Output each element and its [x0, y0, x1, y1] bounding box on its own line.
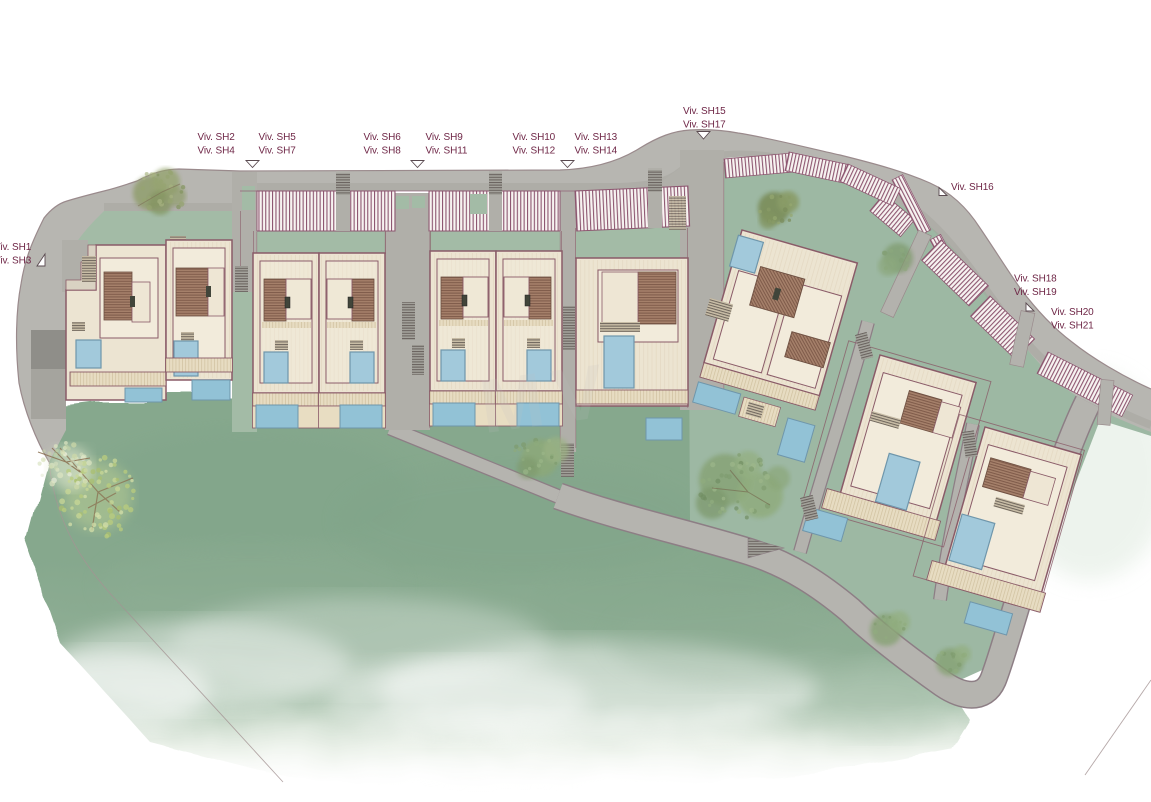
- svg-text:Viv. SH11: Viv. SH11: [426, 146, 468, 157]
- svg-text:Viv. SH9: Viv. SH9: [426, 132, 464, 143]
- svg-text:Viv. SH1: Viv. SH1: [0, 242, 32, 253]
- svg-text:Viv. SH5: Viv. SH5: [259, 132, 297, 143]
- svg-text:Viv. SH10: Viv. SH10: [513, 132, 556, 143]
- svg-text:Viv. SH4: Viv. SH4: [198, 146, 236, 157]
- svg-text:Viv. SH2: Viv. SH2: [198, 132, 236, 143]
- svg-text:Viv. SH19: Viv. SH19: [1014, 287, 1057, 298]
- svg-text:Viv. SH12: Viv. SH12: [513, 146, 556, 157]
- svg-text:Viv. SH14: Viv. SH14: [575, 146, 618, 157]
- svg-text:Viv. SH13: Viv. SH13: [575, 132, 618, 143]
- svg-text:Viv. SH21: Viv. SH21: [1051, 321, 1094, 332]
- svg-text:Viv. SH6: Viv. SH6: [364, 132, 402, 143]
- svg-text:Viv. SH18: Viv. SH18: [1014, 274, 1057, 285]
- svg-text:Viv. SH15: Viv. SH15: [683, 106, 726, 117]
- svg-text:Viv. SH7: Viv. SH7: [259, 146, 297, 157]
- svg-text:Viv. SH17: Viv. SH17: [683, 120, 726, 131]
- svg-text:Viv. SH3: Viv. SH3: [0, 256, 32, 267]
- svg-text:Viv. SH16: Viv. SH16: [951, 182, 994, 193]
- svg-text:Viv. SH8: Viv. SH8: [364, 146, 402, 157]
- svg-text:Viv. SH20: Viv. SH20: [1051, 307, 1094, 318]
